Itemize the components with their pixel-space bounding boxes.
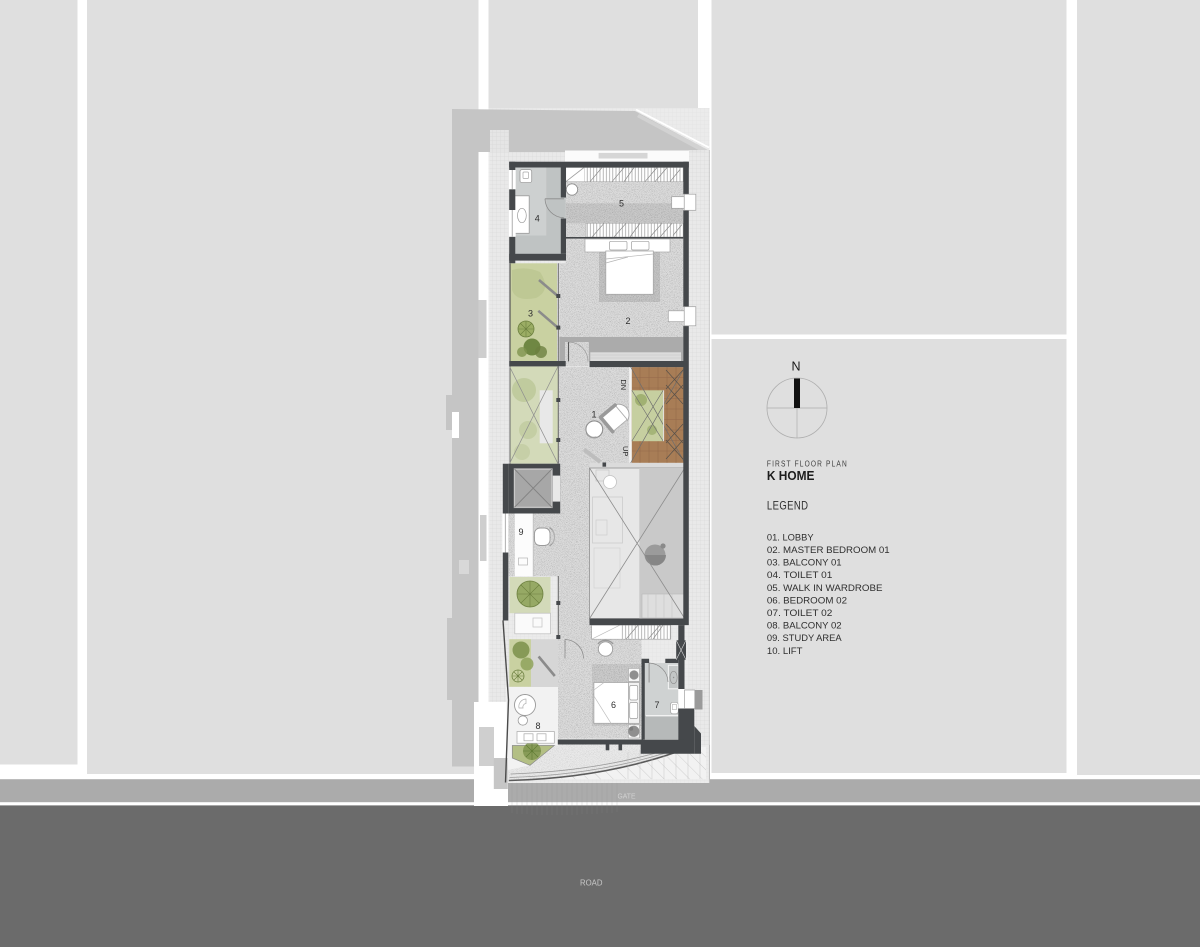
svg-text:3: 3 xyxy=(528,309,533,319)
svg-text:6: 6 xyxy=(611,700,616,710)
svg-text:GATE: GATE xyxy=(618,792,636,801)
svg-text:8: 8 xyxy=(536,721,541,731)
svg-text:10. LIFT: 10. LIFT xyxy=(767,646,803,657)
svg-text:02. MASTER BEDROOM 01: 02. MASTER BEDROOM 01 xyxy=(767,545,890,556)
svg-text:UP: UP xyxy=(621,446,630,456)
svg-text:05. WALK IN WARDROBE: 05. WALK IN WARDROBE xyxy=(767,583,883,594)
svg-text:04. TOILET 01: 04. TOILET 01 xyxy=(767,570,832,581)
svg-text:7: 7 xyxy=(655,700,660,710)
svg-text:1: 1 xyxy=(592,410,597,420)
svg-text:07. TOILET 02: 07. TOILET 02 xyxy=(767,608,832,619)
svg-text:01. LOBBY: 01. LOBBY xyxy=(767,532,814,543)
svg-text:N: N xyxy=(792,360,801,374)
svg-text:08. BALCONY 02: 08. BALCONY 02 xyxy=(767,621,842,632)
svg-text:5: 5 xyxy=(619,199,624,209)
svg-text:4: 4 xyxy=(535,214,540,224)
svg-text:FIRST FLOOR PLAN: FIRST FLOOR PLAN xyxy=(767,458,848,468)
svg-text:9: 9 xyxy=(519,527,524,537)
svg-text:K HOME: K HOME xyxy=(767,469,815,483)
svg-text:ROAD: ROAD xyxy=(580,878,603,888)
svg-text:DN: DN xyxy=(619,379,628,390)
svg-text:03. BALCONY 01: 03. BALCONY 01 xyxy=(767,558,842,569)
svg-text:09. STUDY AREA: 09. STUDY AREA xyxy=(767,633,842,644)
svg-text:2: 2 xyxy=(626,316,631,326)
svg-text:LEGEND: LEGEND xyxy=(767,498,809,512)
svg-text:06. BEDROOM 02: 06. BEDROOM 02 xyxy=(767,595,847,606)
